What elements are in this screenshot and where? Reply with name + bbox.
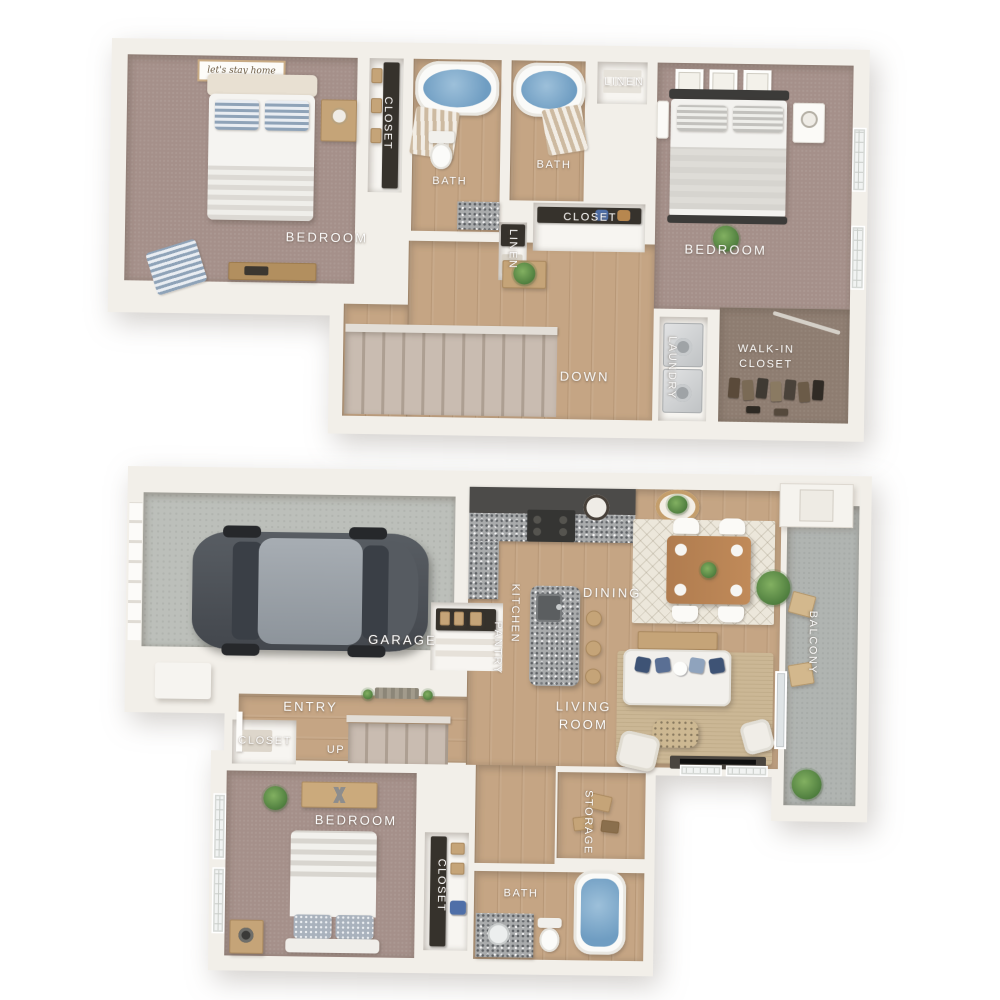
shower-curtain [541, 104, 588, 156]
label-closet-entry: CLOSET [238, 735, 292, 748]
front-stoop [155, 662, 211, 699]
label-garage: GARAGE [368, 632, 437, 648]
table-plate [730, 584, 742, 596]
window [211, 867, 225, 933]
shoes [746, 406, 760, 413]
round-pillow [673, 662, 687, 676]
lamp [803, 113, 816, 126]
stove-burner [559, 516, 567, 524]
label-closet-bedroom: CLOSET [435, 859, 448, 913]
balcony-storage-door [799, 489, 833, 521]
basket-plant [667, 496, 687, 514]
hanging-clothes [784, 379, 797, 400]
sliding-door [774, 671, 787, 749]
staircase-down [344, 332, 557, 417]
closet-box [370, 128, 381, 143]
entry-plant [363, 689, 373, 699]
dining-chair [718, 606, 744, 622]
bar-stool [586, 610, 602, 626]
label-living-room: LIVING ROOM [555, 697, 611, 733]
closet-box [451, 843, 465, 855]
bath-vanity [457, 201, 499, 230]
label-walk-in-closet: WALK-IN CLOSET [738, 342, 795, 373]
tv [680, 759, 756, 765]
label-kitchen: KITCHEN [509, 584, 522, 644]
window [850, 226, 865, 290]
bed-right-pillow [733, 106, 783, 133]
window [680, 765, 722, 777]
throw-pillow [654, 657, 671, 674]
bathtub-water [580, 878, 619, 947]
label-linen-hall: LINEN [506, 229, 519, 270]
hanging-clothes [728, 377, 741, 398]
room-storage [557, 772, 646, 859]
closet-box [371, 68, 382, 83]
storage-box [600, 820, 619, 834]
closet-box [450, 863, 464, 875]
window [726, 765, 768, 777]
garage-door [128, 502, 143, 640]
bed-lower-headboard [285, 938, 379, 953]
stove-burner [533, 516, 541, 524]
hanging-clothes [812, 380, 824, 401]
label-linen-top: LINEN [604, 76, 645, 89]
room-corridor [474, 765, 555, 864]
bench [228, 262, 316, 281]
bed-lower-pillow [293, 914, 331, 939]
car-wheel [349, 527, 387, 540]
console-table [637, 631, 717, 650]
bed-right-pillow [677, 105, 727, 132]
pantry-box [440, 611, 450, 625]
dining-chair [719, 518, 745, 534]
bed-left-pillow [265, 100, 309, 131]
car-wheel [223, 525, 261, 538]
kitchen-counter-left [468, 541, 499, 599]
label-bath-lower: BATH [504, 887, 539, 899]
pantry-box [454, 612, 464, 626]
stair-banister [346, 715, 450, 723]
stove-burner [533, 528, 541, 536]
lamp [238, 928, 253, 943]
window [852, 128, 867, 192]
car-roof [258, 538, 363, 645]
stove-burner [559, 528, 567, 536]
floor-plan-image: { "upper_floor": { "bedroom_left": "BEDR… [0, 0, 1000, 1000]
bed-lower-pillow [335, 915, 373, 940]
label-storage: STORAGE [582, 790, 595, 855]
pantry-shelf [436, 638, 496, 645]
label-bedroom-lower: BEDROOM [315, 812, 398, 828]
bed-right-duvet [669, 147, 786, 211]
entry-plant [423, 690, 433, 700]
car-wheel [221, 643, 259, 656]
label-bedroom-right: BEDROOM [684, 242, 767, 258]
table-plate [731, 544, 743, 556]
hanging-clothes [742, 380, 754, 401]
closet-box [371, 98, 382, 113]
hanging-clothes [798, 381, 811, 402]
toilet-tank [538, 918, 562, 928]
staircase-up [348, 723, 449, 764]
label-stairs-down: DOWN [560, 369, 610, 385]
label-closet-hall: CLOSET [563, 211, 617, 224]
room-balcony [783, 505, 859, 806]
label-bath-left: BATH [432, 175, 467, 188]
entry-wall-decor [375, 687, 419, 699]
bed-left-pillow [215, 100, 259, 131]
label-closet-upper: CLOSET [381, 96, 394, 150]
bathtub-water [423, 69, 492, 108]
dining-chair [673, 518, 699, 534]
throw-pillow [708, 657, 725, 674]
bed-lower-blanket [290, 830, 377, 877]
dining-chair [672, 606, 698, 622]
bed-left-blanket [207, 166, 314, 222]
dresser-decor [313, 787, 365, 804]
lower-floor-plan: GARAGE PANTRY KITCHEN DINING BALCONY ENT… [121, 466, 872, 979]
bench-items [244, 266, 268, 275]
stove [527, 510, 575, 543]
label-balcony: BALCONY [806, 611, 819, 675]
storage-bin [450, 901, 466, 915]
island-faucet [556, 604, 562, 610]
upper-floor-plan: let's stay home [106, 38, 870, 442]
throw-pillow [634, 656, 652, 674]
car-rear-window [362, 545, 389, 639]
label-dining: DINING [583, 585, 642, 601]
hanging-clothes [770, 381, 782, 401]
window [213, 793, 227, 859]
label-bath-right: BATH [537, 159, 572, 172]
throw-pillow [688, 657, 705, 674]
label-laundry: LAUNDRY [665, 336, 678, 400]
storage-box [617, 210, 630, 221]
pantry-box [470, 612, 482, 626]
shoes [774, 408, 788, 415]
label-bedroom-left: BEDROOM [285, 229, 368, 245]
toilet-tank [428, 131, 454, 143]
pantry-shelf [435, 650, 495, 657]
bed-lower-sheet [290, 876, 377, 917]
label-stairs-up: UP [327, 744, 346, 756]
label-entry: ENTRY [283, 699, 338, 715]
nightstand [656, 101, 669, 139]
table-centerpiece [700, 562, 716, 578]
table-plate [674, 584, 686, 596]
bathtub-water [521, 70, 578, 109]
label-pantry: PANTRY [491, 621, 504, 674]
